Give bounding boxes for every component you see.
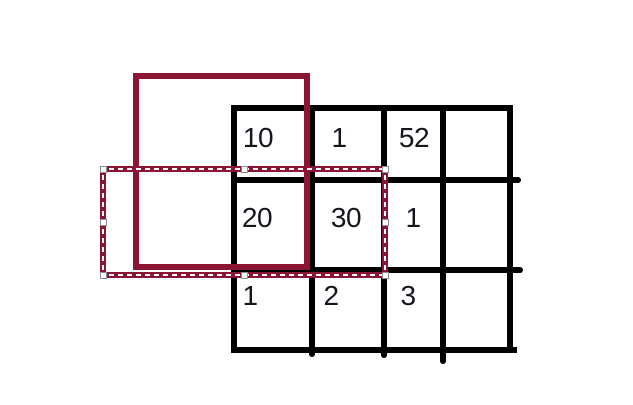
selection-handle-se[interactable] <box>382 272 389 279</box>
grid-cell-value-r1c3: 52 <box>384 124 444 152</box>
grid-cell-value-r3c3: 3 <box>378 282 438 310</box>
selection-handle-sw[interactable] <box>100 272 107 279</box>
selection-handle-n[interactable] <box>241 166 248 173</box>
grid-line-vertical-5 <box>507 105 513 353</box>
selection-handle-w[interactable] <box>100 219 107 226</box>
drawing-canvas: 10 1 52 20 30 1 1 2 3 <box>0 0 633 405</box>
selection-handle-nw[interactable] <box>100 166 107 173</box>
grid-line-horizontal-4 <box>231 347 517 353</box>
grid-cell-value-r2c2: 30 <box>316 204 376 232</box>
grid-cell-value-r2c3: 1 <box>383 204 443 232</box>
grid-cell-value-r1c2: 1 <box>309 124 369 152</box>
selection-handle-ne[interactable] <box>382 166 389 173</box>
grid-cell-value-r3c2: 2 <box>301 282 361 310</box>
grid-cell-value-r3c1: 1 <box>220 282 280 310</box>
selection-handle-s[interactable] <box>241 272 248 279</box>
selection-handle-e[interactable] <box>382 219 389 226</box>
